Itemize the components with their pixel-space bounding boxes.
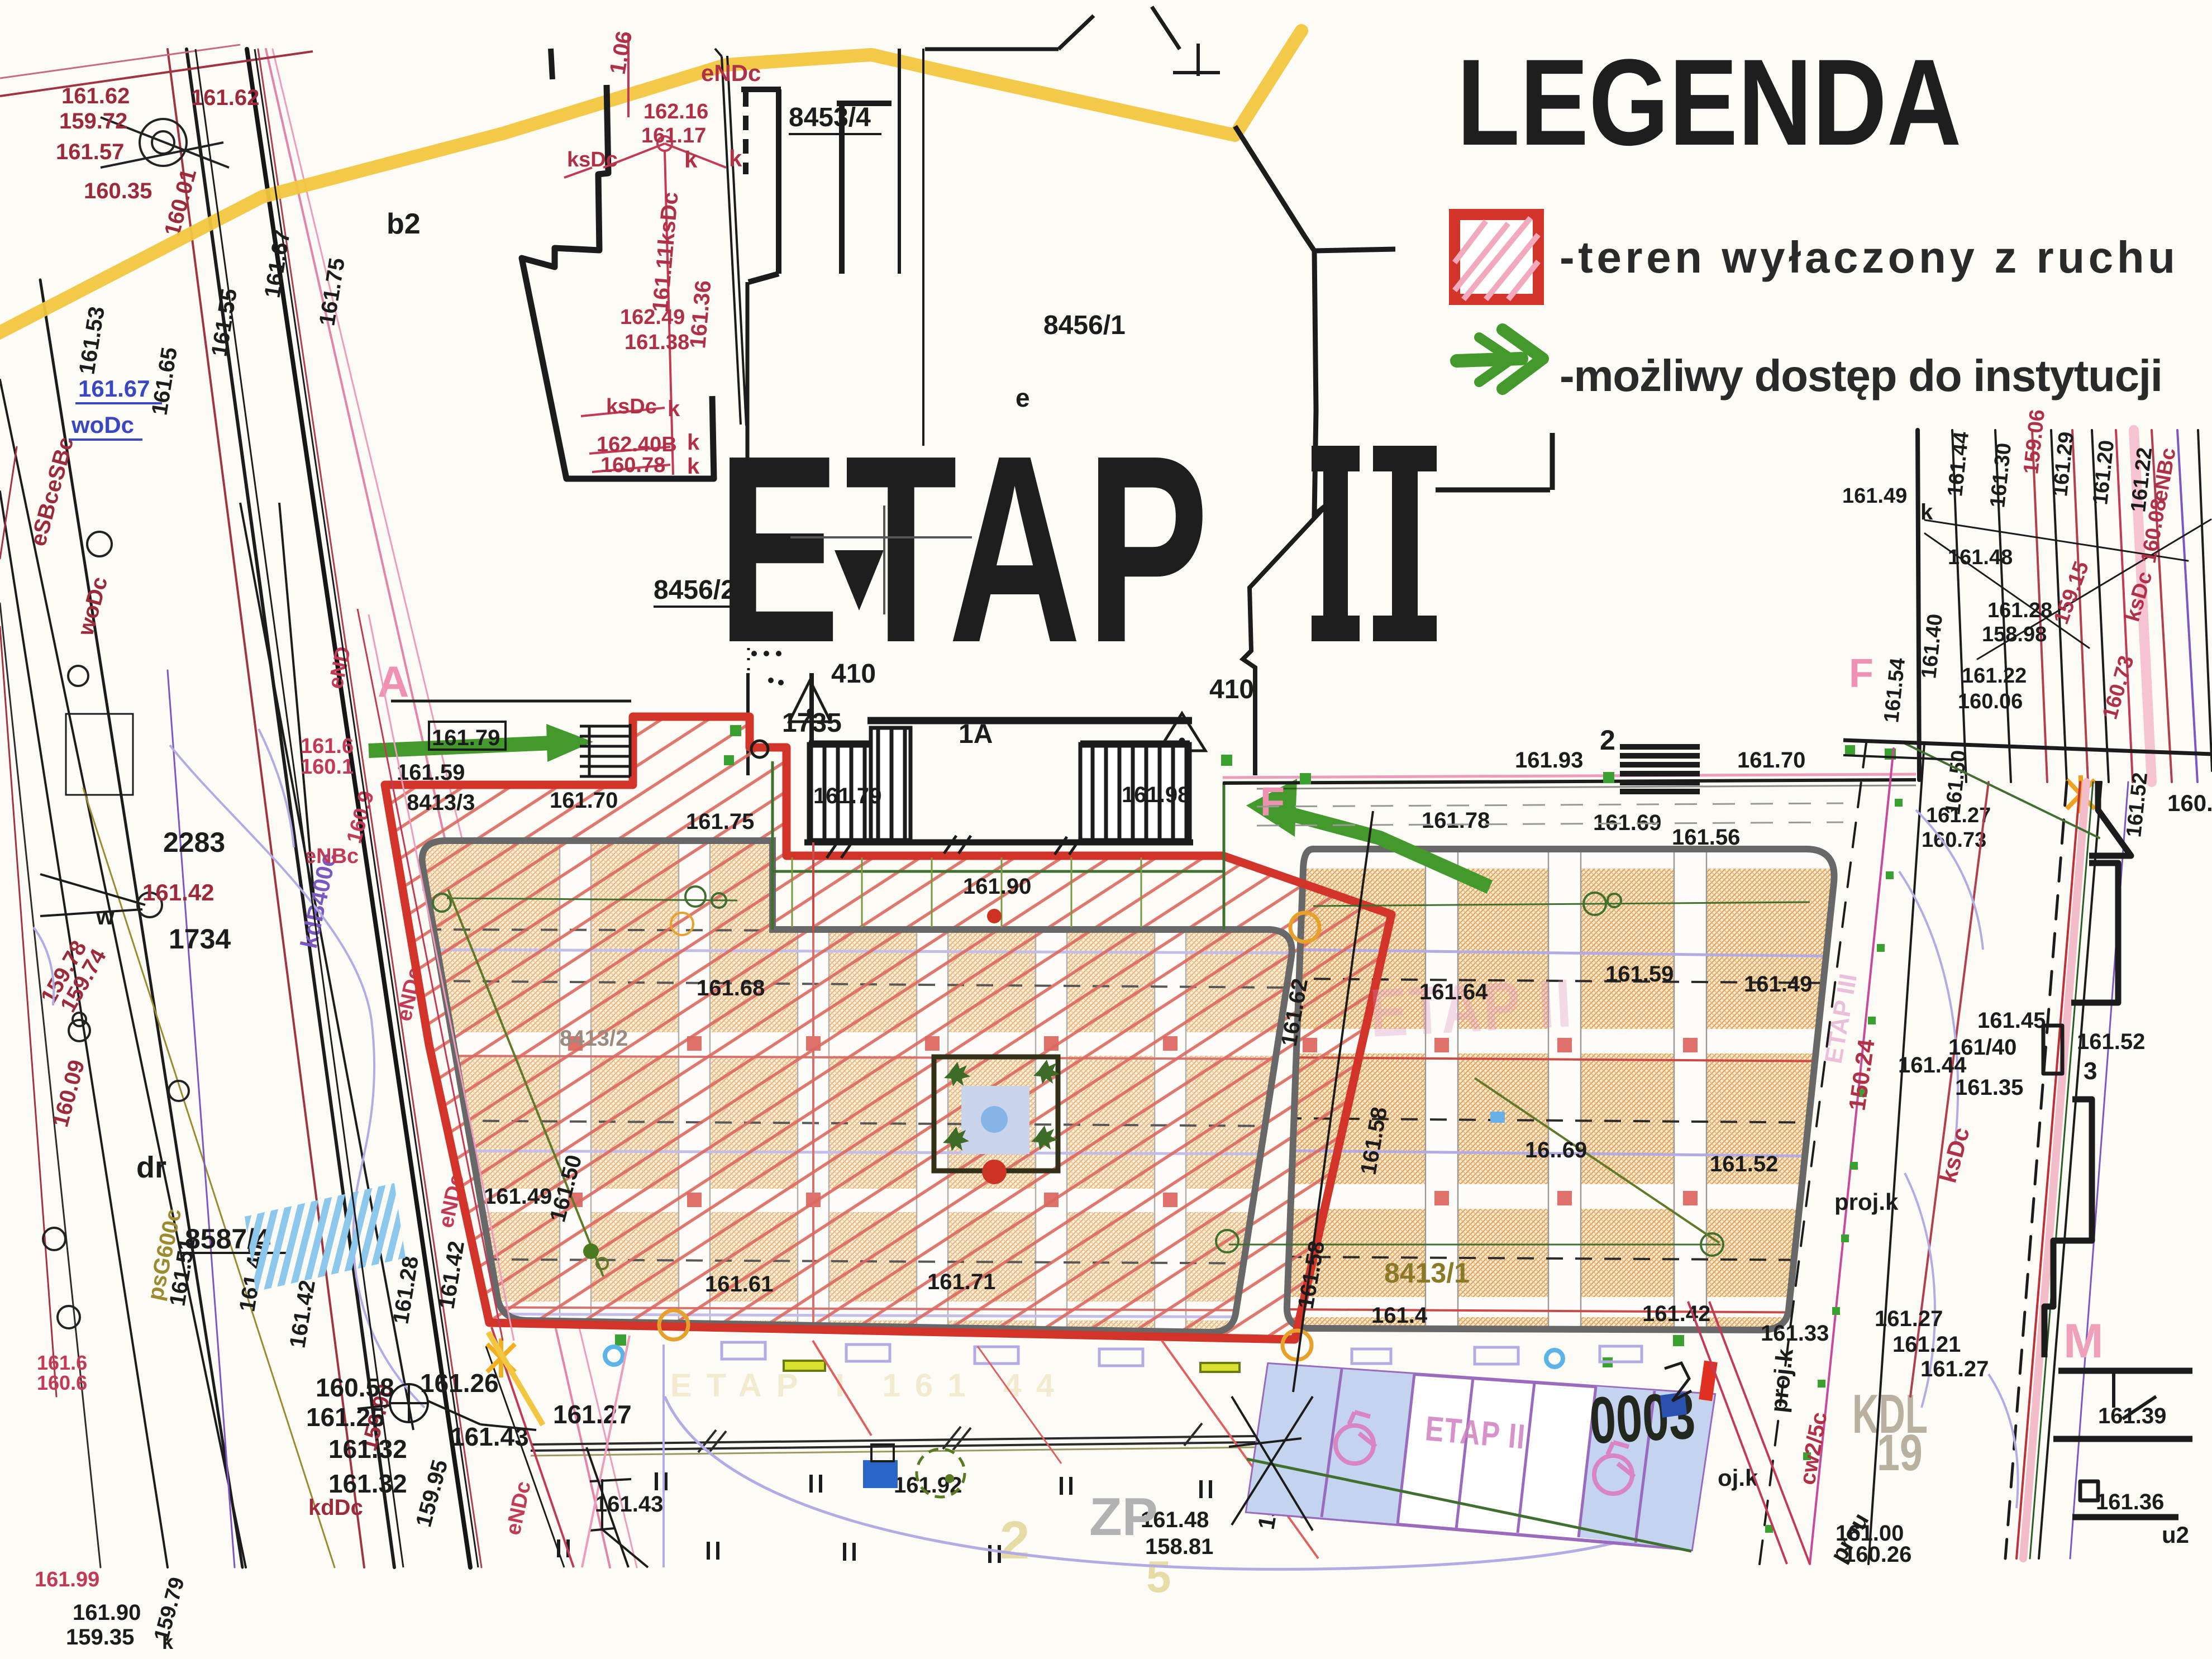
svg-text:161.98: 161.98 [1122, 783, 1190, 807]
svg-text:M: M [2063, 1314, 2104, 1368]
svg-text:161.27: 161.27 [1875, 1307, 1943, 1331]
svg-text:-możliwy dostęp do instytucji: -możliwy dostęp do instytucji [1560, 351, 2163, 401]
svg-text:161.75: 161.75 [686, 809, 754, 834]
svg-text:160.35: 160.35 [84, 179, 152, 203]
svg-text:161.57: 161.57 [56, 140, 124, 164]
svg-text:410: 410 [831, 659, 876, 689]
svg-text:proj.k: proj.k [1834, 1189, 1899, 1215]
svg-text:161.45: 161.45 [1977, 1008, 2046, 1033]
svg-text:k: k [729, 145, 742, 171]
svg-text:161.28: 161.28 [1987, 599, 2052, 622]
svg-text:k: k [162, 1631, 174, 1653]
svg-text:b2: b2 [387, 208, 421, 240]
svg-text:8453/4: 8453/4 [789, 103, 871, 132]
svg-text:161.52: 161.52 [1710, 1152, 1778, 1176]
svg-text:160.1: 160.1 [301, 755, 354, 779]
svg-text:woDc: woDc [71, 412, 134, 438]
svg-text:-teren wyłaczony z ruchu: -teren wyłaczony z ruchu [1560, 232, 2175, 282]
svg-text:3: 3 [2084, 1057, 2097, 1085]
svg-text:8413/3: 8413/3 [407, 790, 475, 815]
svg-text:ksDc: ksDc [567, 148, 618, 171]
svg-text:161.33: 161.33 [1761, 1321, 1829, 1346]
svg-text:161.21: 161.21 [1892, 1332, 1961, 1357]
svg-text:161.43: 161.43 [450, 1422, 529, 1451]
svg-text:161.22: 161.22 [1962, 664, 2027, 688]
svg-text:161.38: 161.38 [624, 331, 689, 354]
svg-text:162.16: 162.16 [643, 100, 708, 123]
svg-text:ksDc: ksDc [606, 395, 657, 418]
svg-text:161.17: 161.17 [641, 124, 706, 147]
svg-text:161.52: 161.52 [2077, 1029, 2145, 1054]
svg-text:161.90: 161.90 [73, 1600, 141, 1625]
svg-text:k: k [668, 397, 680, 421]
svg-text:161.59: 161.59 [1605, 962, 1674, 986]
svg-text:161.43: 161.43 [595, 1492, 663, 1517]
svg-text:ETAP I 161 44: ETAP I 161 44 [670, 1367, 1069, 1404]
svg-text:161.6: 161.6 [37, 1351, 87, 1374]
svg-text:161.27: 161.27 [553, 1400, 632, 1429]
svg-text:w: w [96, 903, 115, 929]
svg-text:k: k [684, 146, 698, 173]
svg-text:19: 19 [1877, 1424, 1923, 1481]
svg-text:161.59: 161.59 [397, 760, 465, 785]
svg-text:161.6: 161.6 [301, 735, 354, 758]
svg-text:161.36: 161.36 [2096, 1490, 2164, 1514]
svg-text:k: k [1920, 500, 1933, 525]
svg-text:160.26: 160.26 [1843, 1542, 1911, 1567]
svg-text:160.78: 160.78 [600, 454, 665, 477]
svg-text:161.4: 161.4 [1371, 1303, 1428, 1328]
svg-text:ZP: ZP [1089, 1487, 1158, 1547]
svg-text:159.72: 159.72 [59, 109, 127, 134]
svg-text:161.49: 161.49 [1744, 972, 1812, 997]
svg-text:160.73: 160.73 [1922, 828, 1986, 852]
svg-text:k: k [687, 454, 700, 479]
svg-text:161.39: 161.39 [2098, 1404, 2166, 1428]
svg-text:161.56: 161.56 [1672, 825, 1740, 850]
svg-text:161.90: 161.90 [963, 874, 1031, 899]
svg-text:eNBc: eNBc [304, 845, 359, 868]
svg-text:u2: u2 [2162, 1522, 2189, 1548]
svg-text:161.70: 161.70 [1737, 748, 1805, 773]
svg-text:158.98: 158.98 [1982, 623, 2047, 646]
svg-text:162.40B: 162.40B [597, 433, 677, 456]
svg-text:1734: 1734 [169, 923, 231, 955]
svg-text:ETAP II: ETAP II [1368, 965, 1575, 1052]
svg-text:2: 2 [1600, 724, 1615, 756]
svg-text:161.78: 161.78 [1422, 808, 1490, 833]
svg-text:kdDc: kdDc [308, 1495, 363, 1520]
svg-text:161.27: 161.27 [1920, 1357, 1989, 1381]
svg-text:8456/1: 8456/1 [1043, 311, 1126, 340]
svg-text:8413/2: 8413/2 [560, 1026, 628, 1051]
svg-text:161.42: 161.42 [1642, 1302, 1710, 1326]
svg-text:159.35: 159.35 [66, 1625, 134, 1650]
svg-text:161.35: 161.35 [1955, 1075, 2023, 1100]
svg-text:2: 2 [1000, 1510, 1029, 1570]
svg-text:161.62: 161.62 [61, 84, 130, 108]
svg-text:161.49: 161.49 [1842, 484, 1907, 508]
svg-text:161.26: 161.26 [420, 1369, 499, 1398]
svg-text:160.6: 160.6 [37, 1371, 87, 1394]
svg-text:161.61: 161.61 [705, 1272, 773, 1296]
svg-text:dr: dr [136, 1151, 166, 1184]
svg-text:161.70: 161.70 [550, 788, 618, 813]
svg-text:161.93: 161.93 [1515, 748, 1583, 773]
svg-text:410: 410 [1209, 675, 1254, 704]
svg-text:F: F [1260, 780, 1285, 824]
svg-text:161.79: 161.79 [813, 784, 881, 808]
svg-text:161.71: 161.71 [927, 1270, 995, 1294]
svg-text:F: F [1849, 651, 1873, 696]
svg-text:160.58: 160.58 [316, 1373, 394, 1402]
svg-text:161.44: 161.44 [1898, 1053, 1967, 1078]
svg-text:2283: 2283 [163, 827, 225, 858]
svg-text:LEGENDA: LEGENDA [1457, 34, 1961, 171]
svg-text:161.64: 161.64 [1419, 980, 1488, 1004]
svg-text:161.32: 161.32 [328, 1469, 407, 1498]
svg-text:161.79: 161.79 [432, 726, 500, 750]
svg-text:161.42: 161.42 [142, 879, 214, 905]
svg-text:161.49: 161.49 [484, 1184, 552, 1209]
svg-text:161.99: 161.99 [35, 1568, 99, 1591]
svg-text:8413/1: 8413/1 [1384, 1257, 1470, 1289]
svg-text:160.06: 160.06 [1958, 690, 2023, 713]
svg-text:16..69: 16..69 [1525, 1138, 1587, 1162]
svg-text:160.: 160. [2167, 790, 2212, 816]
svg-text:ETAP: ETAP [717, 400, 1213, 698]
svg-text:161.48: 161.48 [1948, 546, 2013, 569]
svg-text:eNDc: eNDc [701, 60, 761, 86]
svg-text:161.27: 161.27 [1926, 804, 1991, 827]
svg-text:k: k [687, 430, 700, 455]
svg-text:161.68: 161.68 [697, 976, 765, 1000]
svg-text:1735: 1735 [782, 708, 842, 738]
svg-text:161.67: 161.67 [78, 375, 150, 402]
svg-text:5: 5 [1146, 1552, 1171, 1601]
svg-text:161.32: 161.32 [328, 1434, 407, 1463]
svg-text:oj.k: oj.k [1718, 1465, 1758, 1491]
